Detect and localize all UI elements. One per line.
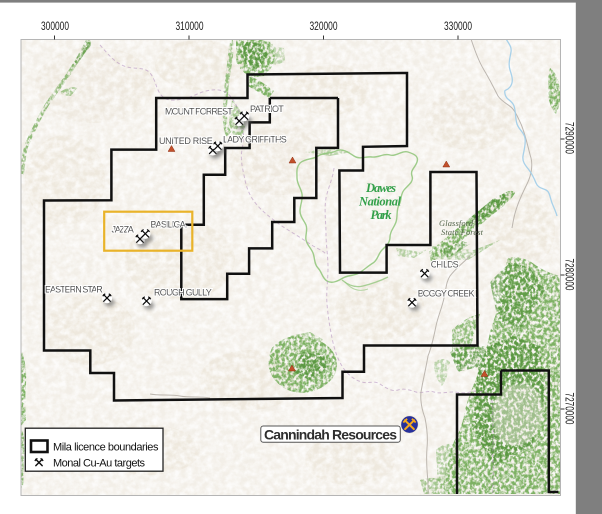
svg-text:MOUNT FORREST: MOUNT FORREST — [165, 107, 233, 117]
svg-text:7270000: 7270000 — [563, 393, 577, 425]
svg-text:Mila licence boundaries: Mila licence boundaries — [53, 442, 159, 454]
svg-text:Cannindah Resources: Cannindah Resources — [264, 427, 397, 443]
svg-text:300000: 300000 — [41, 19, 69, 33]
svg-text:ROUGH GULLY: ROUGH GULLY — [154, 288, 212, 298]
svg-text:BOGGY CREEK: BOGGY CREEK — [418, 289, 475, 299]
svg-text:Monal Cu-Au targets: Monal Cu-Au targets — [53, 458, 146, 470]
svg-text:7290000: 7290000 — [563, 122, 577, 154]
svg-text:LADY GRIFFITHS: LADY GRIFFITHS — [223, 135, 287, 145]
svg-text:PATRIOT: PATRIOT — [250, 104, 284, 114]
svg-text:State Forest: State Forest — [441, 227, 484, 237]
svg-text:Dawes: Dawes — [365, 181, 396, 195]
svg-text:7280000: 7280000 — [563, 259, 577, 291]
svg-text:UNITED RISE: UNITED RISE — [159, 136, 213, 146]
svg-text:Park: Park — [371, 208, 393, 222]
svg-text:EASTERN STAR: EASTERN STAR — [45, 285, 103, 295]
svg-text:330000: 330000 — [444, 19, 472, 33]
svg-text:320000: 320000 — [310, 19, 338, 33]
svg-text:JAZZA: JAZZA — [112, 225, 135, 235]
svg-text:National: National — [358, 195, 402, 209]
svg-text:310000: 310000 — [176, 19, 204, 33]
svg-text:CHILDS: CHILDS — [431, 260, 459, 270]
svg-text:BASILIGA.: BASILIGA. — [151, 220, 188, 230]
